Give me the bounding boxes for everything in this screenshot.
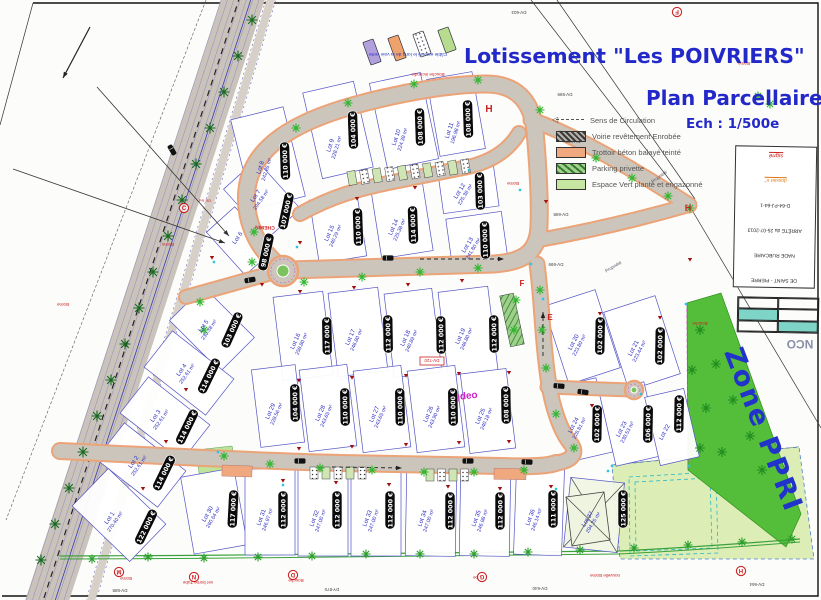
- car-icon: [383, 255, 394, 260]
- car-icon: [463, 458, 474, 463]
- lot-price-badge: 112 000 €: [332, 491, 342, 529]
- map-annotation: PR RD: [199, 198, 212, 203]
- map-annotation: Borne: [507, 181, 520, 186]
- svg-text:M: M: [117, 568, 122, 574]
- utility-dot: [688, 465, 690, 467]
- north-arrow: [63, 27, 90, 78]
- lot-price-badge: 112 000 €: [674, 395, 685, 433]
- utility-dot: [607, 470, 609, 472]
- car-icon: [295, 458, 306, 463]
- lot-price-badge: 111 000 €: [548, 490, 558, 528]
- svg-text:110 000 €: 110 000 €: [482, 222, 490, 257]
- title-block-line: NADE RUBCAIRE: [736, 250, 812, 258]
- title-block-signature: signé: [738, 150, 814, 158]
- circled-letter-marker: G: [477, 572, 486, 581]
- tree-icon: [470, 468, 479, 477]
- sidewalk-swatch-icon: [556, 147, 586, 158]
- material-swatch: [388, 35, 407, 61]
- svg-text:112 000 €: 112 000 €: [387, 492, 394, 527]
- green-space-swatch-icon: [556, 179, 586, 190]
- svg-text:N: N: [192, 573, 196, 579]
- svg-text:108 000 €: 108 000 €: [417, 109, 425, 144]
- svg-text:110 000 €: 110 000 €: [355, 209, 363, 244]
- svg-text:102 000 €: 102 000 €: [657, 328, 665, 363]
- svg-text:114 000 €: 114 000 €: [410, 207, 418, 242]
- utility-dot: [685, 303, 687, 305]
- tree-icon: [344, 99, 353, 108]
- svg-text:117 000 €: 117 000 €: [324, 318, 332, 353]
- svg-text:108 000 €: 108 000 €: [503, 387, 511, 422]
- svg-text:D: D: [290, 571, 295, 577]
- map-annotation: DV-699: [548, 262, 564, 267]
- lot-price-badge: 110 000 €: [352, 208, 363, 246]
- circled-letter-marker: H: [736, 566, 745, 575]
- svg-text:112 000 €: 112 000 €: [491, 316, 499, 351]
- map-annotation: Câble enterré le long de la voie verte: [368, 51, 447, 57]
- road: [539, 205, 689, 240]
- frontage-marker: [210, 256, 214, 260]
- arrow-head-icon: [61, 72, 68, 79]
- tree-icon: [292, 124, 301, 133]
- map-annotation: NCO: [787, 337, 814, 351]
- lot-price-badge: 112 000 €: [383, 315, 394, 353]
- sidewalk-patch: [222, 465, 252, 477]
- lot-price-badge: 112 000 €: [445, 492, 455, 530]
- map-annotation: DV-664: [749, 582, 765, 587]
- tree-icon: [368, 466, 377, 475]
- frontage-marker: [298, 241, 302, 245]
- tree-icon: [474, 264, 483, 273]
- red-letter-marker: H: [485, 104, 492, 115]
- utility-dot: [611, 465, 613, 467]
- lot-price-badge: 110 000 €: [479, 221, 490, 259]
- map-annotation: CHEMIN: [255, 224, 275, 231]
- utility-dot: [530, 263, 532, 265]
- frontage-marker: [298, 290, 302, 294]
- lot-price-badge: 112 000 €: [436, 316, 447, 354]
- lot-price-badge: 110 000 €: [448, 388, 459, 426]
- frontage-marker: [460, 279, 464, 283]
- svg-text:102 000 €: 102 000 €: [597, 318, 605, 353]
- red-letter-marker: F: [520, 279, 525, 288]
- circled-letter-marker: N: [189, 572, 198, 581]
- lot-price-badge: 110 000 €: [279, 142, 290, 180]
- tree-icon: [420, 468, 429, 477]
- map-annotation: DV-640: [532, 586, 548, 591]
- map-annotation: DV-599: [557, 92, 573, 97]
- svg-text:112 000 €: 112 000 €: [385, 316, 393, 351]
- map-annotation: DV-698: [553, 212, 569, 217]
- parking-swatch-icon: [556, 163, 586, 174]
- utility-dot: [555, 488, 557, 490]
- parking-cell: [346, 467, 354, 479]
- boundary-line: [0, 3, 33, 125]
- utility-dot: [217, 451, 219, 453]
- tree-icon: [711, 359, 721, 369]
- legend-item-circulation: Sens de Circulation: [556, 112, 766, 128]
- lot-price-badge: 108 000 €: [414, 108, 425, 146]
- frontage-marker: [507, 371, 511, 375]
- lot-price-badge: 108 000 €: [462, 100, 473, 138]
- lot-price-badge: 102 000 €: [595, 317, 606, 355]
- tree-icon: [410, 80, 419, 89]
- parking-green-strip: [500, 293, 525, 347]
- legend-item-voirie: Voirie revêtement Enrobée: [556, 128, 766, 144]
- tree-icon: [416, 268, 425, 277]
- utility-dot: [542, 298, 544, 300]
- frontage-marker: [688, 258, 692, 262]
- circled-letter-marker: D: [288, 570, 297, 579]
- lot-price-badge: 112 000 €: [489, 315, 500, 353]
- plan-subtitle: Plan Parcellaire: [646, 86, 821, 110]
- tree-icon: [220, 452, 229, 461]
- map-annotation: Propriété: [604, 260, 623, 274]
- svg-text:H: H: [739, 567, 743, 573]
- svg-text:106 000 €: 106 000 €: [645, 406, 653, 441]
- map-annotation: Borne: [57, 302, 70, 307]
- svg-text:112 000 €: 112 000 €: [447, 493, 454, 528]
- svg-text:C: C: [182, 206, 187, 212]
- tree-icon: [248, 258, 257, 267]
- parking-cell: [358, 467, 366, 479]
- parking-cell: [461, 469, 469, 481]
- tree-icon: [50, 519, 61, 530]
- asphalt-swatch-icon: [556, 131, 586, 142]
- red-letter-marker: E: [547, 313, 553, 322]
- svg-text:108 000 €: 108 000 €: [465, 101, 473, 136]
- tree-icon: [717, 447, 727, 457]
- lot-price-badge: 112 000 €: [385, 491, 395, 529]
- tree-icon: [695, 443, 705, 453]
- circled-letter-marker: C: [179, 203, 188, 212]
- svg-text:102 000 €: 102 000 €: [594, 406, 602, 441]
- tree-icon: [144, 553, 153, 562]
- approval-table: [737, 296, 820, 333]
- tree-icon: [701, 403, 711, 413]
- lot-price-badge: 114 000 €: [407, 206, 418, 244]
- tree-icon: [316, 464, 325, 473]
- frontage-marker: [350, 376, 354, 380]
- title-block: DE SAINT - PIERRE NADE RUBCAIRE ARRÊTÉ d…: [733, 145, 817, 288]
- parking-cell: [322, 467, 330, 479]
- lot-price-badge: 125 000 €: [618, 490, 628, 528]
- map-annotation: Borne: [162, 242, 175, 247]
- svg-text:F: F: [675, 8, 679, 14]
- svg-text:112 000 €: 112 000 €: [438, 317, 446, 352]
- tree-icon: [36, 555, 47, 566]
- lot-price-badge: 108 000 €: [501, 386, 512, 424]
- svg-text:103 000 €: 103 000 €: [477, 173, 485, 208]
- lot-price-badge: 110 000 €: [340, 388, 351, 426]
- utility-dot: [282, 484, 284, 486]
- car-icon: [553, 383, 564, 389]
- parking-cell: [449, 469, 457, 481]
- map-annotation: nouvelle Borne: [589, 573, 620, 578]
- map-annotation: Borne: [120, 576, 133, 581]
- utility-dot: [640, 393, 642, 395]
- circled-letter-marker: F: [672, 7, 681, 16]
- frontage-marker: [260, 283, 264, 287]
- tree-icon: [687, 365, 697, 375]
- frontage-marker: [406, 283, 410, 287]
- lot-price-badge: 106 000 €: [643, 405, 654, 443]
- svg-text:104 000 €: 104 000 €: [292, 385, 300, 420]
- lot-price-badge: 112 000 €: [495, 492, 505, 530]
- title-block-line: DE SAINT - PIERRE: [736, 275, 812, 283]
- svg-text:G: G: [479, 573, 484, 579]
- svg-text:112 000 €: 112 000 €: [280, 492, 287, 527]
- svg-text:104 000 €: 104 000 €: [350, 112, 358, 147]
- svg-text:DV-720: DV-720: [424, 358, 440, 363]
- title-block-line: ARRÊTÉ du 25-07-2013: [737, 225, 813, 233]
- svg-text:110 000 €: 110 000 €: [342, 389, 350, 424]
- red-letter-marker: H: [685, 203, 692, 213]
- lot-price-badge: 102 000 €: [655, 327, 666, 365]
- parking-cell: [310, 467, 318, 479]
- svg-text:112 000 €: 112 000 €: [497, 493, 504, 528]
- parcel-plan-canvas: DV-603DV-599DV-698DV-698DV-699DV-588DY-8…: [0, 0, 821, 600]
- direction-arrow-icon: [556, 119, 584, 121]
- car-icon: [521, 459, 532, 465]
- map-annotation: Bouche incendie: [411, 72, 445, 77]
- lot-price-badge: 104 000 €: [347, 111, 358, 149]
- parking-cell: [334, 467, 342, 479]
- tree-icon: [196, 298, 205, 307]
- tree-icon: [474, 76, 483, 85]
- tree-icon: [266, 460, 275, 469]
- plan-title: Lotissement "Les POIVRIERS": [464, 44, 805, 68]
- svg-text:125 000 €: 125 000 €: [620, 491, 627, 526]
- utility-dot: [213, 261, 215, 263]
- boxed-label: DV-720: [420, 357, 444, 365]
- lot-price-badge: 117 000 €: [322, 317, 333, 355]
- utility-dot: [519, 189, 521, 191]
- svg-text:112 000 €: 112 000 €: [334, 492, 341, 527]
- svg-text:110 000 €: 110 000 €: [397, 389, 405, 424]
- parking-cell: [438, 469, 446, 481]
- svg-text:112 000 €: 112 000 €: [676, 396, 684, 431]
- map-annotation: Bouche: [692, 321, 708, 326]
- material-swatch: [438, 27, 457, 53]
- title-block-line: D-64-PJ-64-1: [737, 200, 813, 208]
- frontage-marker: [297, 447, 301, 451]
- svg-text:110 000 €: 110 000 €: [282, 143, 290, 178]
- lot-price-badge: 102 000 €: [592, 405, 603, 443]
- map-annotation: DV-603: [511, 10, 527, 15]
- frontage-marker: [352, 286, 356, 290]
- map-annotation: DY-870: [324, 587, 339, 592]
- utility-dot: [468, 169, 470, 171]
- utility-dot: [296, 246, 298, 248]
- tree-icon: [300, 278, 309, 287]
- svg-text:110 000 €: 110 000 €: [450, 389, 458, 424]
- lot-price-badge: 112 000 €: [278, 491, 288, 529]
- title-block-line: dossier n°: [738, 175, 814, 183]
- circled-letter-marker: M: [114, 567, 123, 576]
- map-annotation: ver borne Tube: [182, 580, 213, 585]
- lot-price-badge: 117 000 €: [227, 490, 239, 528]
- lot-price-badge: 104 000 €: [290, 384, 301, 422]
- svg-text:111 000 €: 111 000 €: [550, 491, 557, 526]
- lot-price-badge: 110 000 €: [395, 388, 406, 426]
- parking-cell: [347, 170, 357, 185]
- lot-price-badge: 103 000 €: [474, 172, 485, 210]
- tree-icon: [358, 273, 367, 282]
- map-annotation: DV-588: [112, 588, 128, 593]
